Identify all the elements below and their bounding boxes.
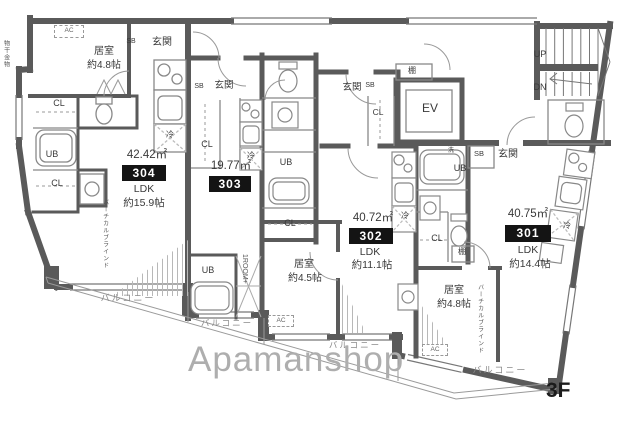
shelf-label-301: 棚 [452, 248, 472, 257]
bedroom-name-301: 居室 [434, 285, 474, 296]
floor-label: 3F [546, 379, 600, 403]
closet-label-301: CL [424, 234, 450, 244]
area-304: 42.42㎡ [118, 149, 176, 162]
balcony-label-303: バルコニー [198, 319, 256, 328]
shoebox-label-304: SB [121, 38, 141, 46]
fridge-label-301: 冷 [556, 222, 578, 231]
fridge-label-304: 冷 [156, 131, 184, 140]
closet-label-303: CL [194, 140, 220, 150]
stairs-down-label: DN [528, 83, 552, 93]
unit-number-303: 303 [209, 176, 251, 192]
type-304: LDK [126, 184, 162, 196]
service-stack [269, 62, 309, 204]
shelf-label-hall: 棚 [400, 67, 424, 76]
unitbath-label-304: UB [40, 150, 64, 160]
closet-label-304b: CL [42, 179, 72, 189]
vertical-blind-label-304: バーチカルブラインド [101, 186, 108, 282]
unit-number-304: 304 [122, 165, 166, 181]
vertical-blind-label-301: バーチカルブラインド [476, 283, 483, 355]
entrance-label-301: 玄関 [488, 149, 528, 160]
entrance-label-303: 玄関 [206, 81, 242, 91]
size-302: 約11.1帖 [340, 260, 404, 272]
entrance-label-304: 玄関 [142, 37, 182, 48]
size-304: 約15.9帖 [112, 198, 176, 210]
unitbath-label-301: UB [448, 164, 472, 174]
area-301: 40.75㎡ [498, 208, 558, 221]
oneroom-plus-label: 1ROOM+ [240, 254, 248, 284]
understairs-toilet [565, 103, 583, 137]
ac-unit-302: AC [268, 315, 294, 327]
unitbath-label-stack: UB [274, 158, 298, 168]
interior-walls [30, 21, 608, 360]
watermark: Apamanshop [188, 340, 404, 380]
floorplan-3f: AC 物干金物 居室 約4.8帖 SB 玄関 CL UB CL 冷 42.42㎡… [0, 0, 640, 426]
laundry-fitting-label-304: 物干金物 [2, 28, 9, 80]
bedroom-size-302: 約4.5帖 [278, 273, 332, 284]
balcony-label-301: バルコニー [470, 366, 530, 376]
area-302: 40.72㎡ [344, 212, 402, 225]
fixtures-302 [392, 152, 418, 310]
shoebox-label-302: SB [362, 82, 378, 90]
fixtures-301 [539, 147, 594, 265]
closet-label-304a: CL [44, 99, 74, 109]
elevator-label: EV [414, 102, 446, 115]
closet-label-302: CL [366, 108, 390, 117]
ac-unit-304: AC [54, 25, 84, 38]
stairs-up-label: UP [528, 50, 552, 60]
bedroom-size-304: 約4.8帖 [70, 60, 138, 71]
washer-label-301: 洗 [444, 148, 458, 155]
fixtures-303 [191, 100, 262, 314]
bedroom-size-301: 約4.8帖 [426, 299, 482, 310]
bedroom-name-304: 居室 [76, 46, 132, 57]
size-301: 約14.4帖 [498, 259, 562, 271]
bedroom-name-302: 居室 [284, 259, 324, 270]
balcony-label-304: バルコニー [96, 294, 160, 304]
type-302: LDK [352, 247, 388, 259]
type-301: LDK [510, 245, 546, 257]
shoebox-label-303: SB [191, 83, 207, 91]
unitbath-label-303: UB [196, 266, 220, 276]
closet-label-stack: CL [278, 219, 302, 229]
ac-unit-301: AC [422, 344, 448, 356]
unit-number-301: 301 [505, 225, 551, 242]
shoebox-label-301: SB [470, 150, 488, 158]
area-303: 19.77㎡ [204, 160, 258, 173]
unit-number-302: 302 [349, 228, 393, 244]
